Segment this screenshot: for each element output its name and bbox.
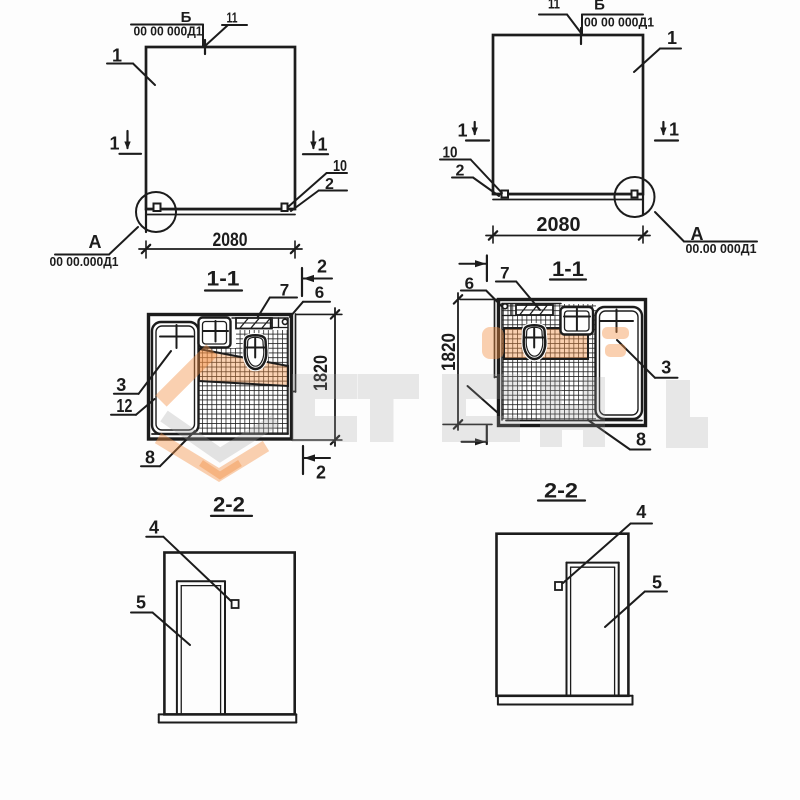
- svg-text:2: 2: [316, 463, 326, 483]
- svg-text:11: 11: [548, 0, 560, 13]
- svg-text:3: 3: [661, 358, 671, 378]
- svg-text:2: 2: [317, 257, 327, 277]
- svg-text:Б: Б: [594, 0, 605, 14]
- svg-text:A: A: [89, 232, 102, 252]
- svg-text:5: 5: [136, 593, 146, 613]
- svg-text:1: 1: [457, 121, 467, 141]
- svg-text:1: 1: [317, 135, 327, 155]
- svg-text:1820: 1820: [439, 333, 460, 371]
- svg-text:00 00 000Д1: 00 00 000Д1: [584, 16, 654, 30]
- svg-text:00 00 000Д1: 00 00 000Д1: [134, 25, 203, 39]
- svg-text:11: 11: [227, 9, 238, 26]
- svg-text:8: 8: [636, 430, 646, 450]
- svg-text:1-1: 1-1: [207, 268, 240, 291]
- svg-text:3: 3: [116, 375, 126, 395]
- svg-text:00 00.000Д1: 00 00.000Д1: [50, 255, 119, 269]
- svg-text:5: 5: [652, 573, 662, 593]
- svg-text:1: 1: [669, 120, 679, 140]
- svg-text:00.00 000Д1: 00.00 000Д1: [686, 242, 757, 256]
- svg-text:2080: 2080: [213, 230, 248, 251]
- svg-text:6: 6: [315, 283, 324, 302]
- svg-text:12: 12: [116, 396, 132, 416]
- svg-text:1-1: 1-1: [552, 258, 584, 281]
- svg-text:4: 4: [636, 502, 646, 522]
- svg-text:1: 1: [109, 134, 119, 154]
- svg-text:2-2: 2-2: [213, 494, 245, 517]
- svg-text:8: 8: [145, 448, 155, 468]
- svg-text:1: 1: [667, 28, 677, 48]
- svg-text:4: 4: [149, 518, 159, 538]
- svg-text:7: 7: [500, 264, 509, 283]
- svg-text:Б: Б: [181, 9, 192, 26]
- svg-text:2080: 2080: [537, 214, 581, 236]
- svg-text:2-2: 2-2: [544, 480, 578, 503]
